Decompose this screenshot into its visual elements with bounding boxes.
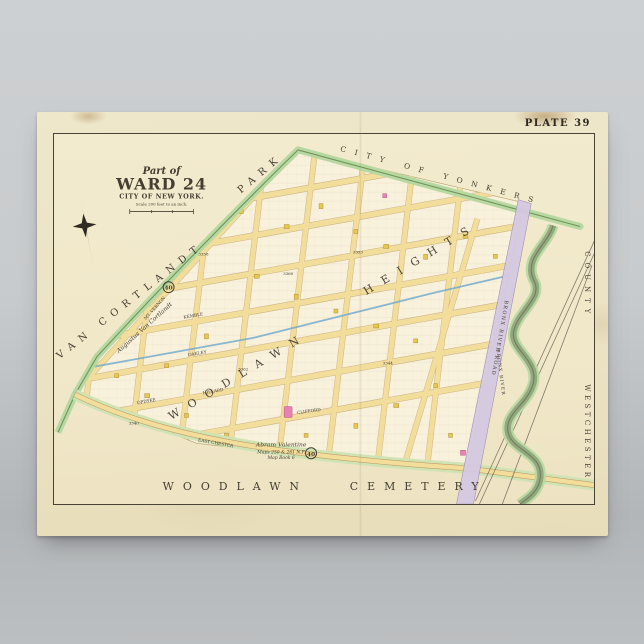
section-badge-number: 40 [307,451,315,458]
title-ward: WARD 24 [115,175,207,194]
region-label-county: COUNTY [583,251,591,319]
annotation-valentine-3: Map Book 6 [267,455,295,461]
church-building [284,407,292,418]
block-number: 3360 [283,271,294,276]
block-number: 3344 [383,361,394,366]
map-sheet: PLATE 39 [37,112,608,536]
annotation-valentine-2: Maps 250 & 261 N.P. [256,449,305,455]
region-label-cemetery-1: WOODLAWN [163,480,308,493]
block-number: 3353 [353,249,364,254]
title-block: Part of WARD 24 CITY OF NEW YORK. Scale … [115,166,207,214]
title-scale-note: Scale 200 feet to an inch. [136,202,187,207]
poster-photo: PLATE 39 [0,0,644,644]
block-number: 3358 [198,251,209,256]
scale-bar [130,209,194,214]
section-badge-number: 40 [164,285,172,292]
block-number: 3362 [238,367,249,372]
plate-number: PLATE 39 [525,118,591,129]
map-frame: BRONX RIVER ROAD BRONX RIVER VAN CORTLAN… [53,133,595,505]
region-label-westchester: WESTCHESTER [583,384,591,480]
title-city: CITY OF NEW YORK. [119,193,204,201]
map-canvas: BRONX RIVER ROAD BRONX RIVER VAN CORTLAN… [54,134,594,504]
annotation-valentine-1: Abram Valentine [255,441,307,448]
block-number: 3340 [129,420,140,425]
region-label-cemetery-2: CEMETERY [350,480,488,493]
compass-rose-icon [70,199,101,271]
